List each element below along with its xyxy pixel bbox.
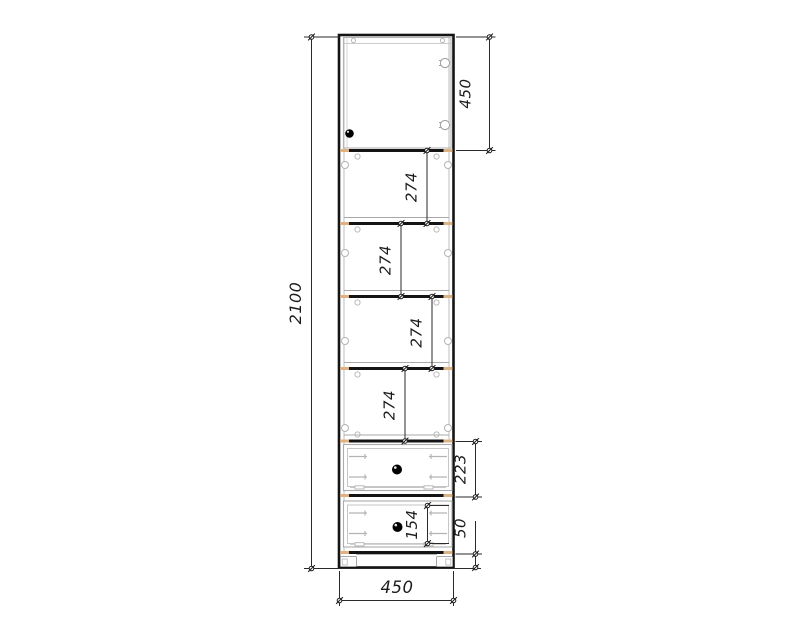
dim-terminator [308,565,315,572]
drawer-bottom [344,501,453,547]
dim-label-plinth: 50 [452,518,470,538]
drawing-canvas: 2100 450 274 274 274 274 223 154 50 450 [0,0,785,642]
dim-terminator [486,147,493,154]
dim-label-door-height: 450 [457,78,475,108]
dim-terminator [472,564,479,571]
dim-terminator [308,34,315,41]
dim-label-overall-height: 2100 [286,282,305,325]
dim-label-drawer-top: 223 [452,454,470,484]
dim-terminator [450,597,457,604]
door-knob [345,129,354,138]
drawer-knob [392,465,402,475]
drawer-rail-fitting [424,486,433,489]
dim-label-drawer-front: 154 [403,509,421,539]
drawer-top [344,445,453,491]
drawer-rail-fitting [355,486,364,489]
dim-label-shelf-4: 274 [381,390,399,420]
dim-terminator [336,597,343,604]
drawer-rail-fitting [355,543,364,546]
dim-terminator [486,34,493,41]
dim-label-shelf-1: 274 [403,172,421,202]
dim-terminator [472,438,479,445]
drawer-knob [393,522,403,532]
dim-terminator [472,551,479,558]
cabinet-technical-drawing: 2100 450 274 274 274 274 223 154 50 450 [0,0,785,642]
dim-label-overall-width: 450 [381,578,414,597]
dim-label-shelf-2: 274 [377,245,395,275]
dim-label-shelf-3: 274 [408,317,426,347]
dim-terminator [472,494,479,501]
